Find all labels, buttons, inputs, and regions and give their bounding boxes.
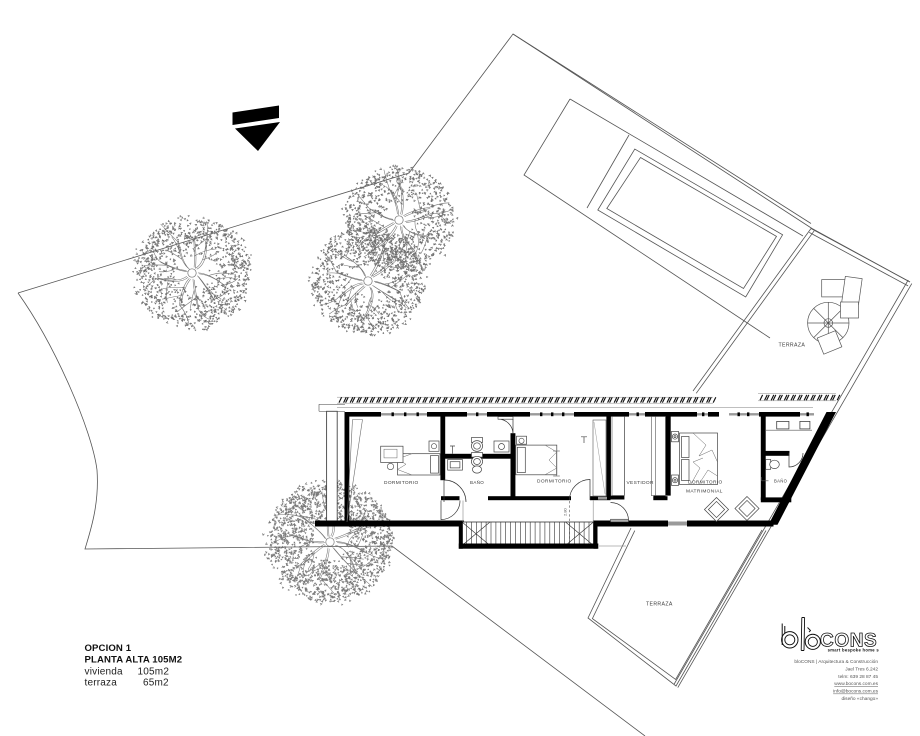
svg-text:DORMITORIO: DORMITORIO [537,479,572,485]
svg-text:smart bespoke home s: smart bespoke home s [828,648,880,653]
svg-text:DORMITORIO: DORMITORIO [384,480,419,486]
svg-text:bloCONS | Arquitectura & Const: bloCONS | Arquitectura & Construcción [794,659,878,665]
svg-text:MATRIMONIAL: MATRIMONIAL [686,489,723,495]
svg-text:info@bocons.com.es: info@bocons.com.es [833,689,878,695]
svg-text:terraza: terraza [85,677,118,688]
svg-text:105m2: 105m2 [138,666,170,677]
svg-text:VESTIDOR: VESTIDOR [627,480,655,486]
svg-text:TERRAZA: TERRAZA [779,343,806,349]
svg-text:OPCION 1: OPCION 1 [85,643,132,654]
svg-text:telm: 639 28 87 45: telm: 639 28 87 45 [838,674,878,680]
svg-text:BAÑO: BAÑO [774,479,788,484]
svg-text:BAÑO: BAÑO [470,479,484,485]
svg-text:2.80: 2.80 [563,507,568,516]
svg-text:diseño «chango»: diseño «chango» [841,696,878,702]
svg-text:PLANTA ALTA 105M2: PLANTA ALTA 105M2 [85,655,183,666]
svg-text:TERRAZA: TERRAZA [646,602,673,608]
svg-text:vivienda: vivienda [85,666,124,677]
svg-text:www.bocons.com.es: www.bocons.com.es [834,681,878,687]
svg-text:DORMITORIO: DORMITORIO [688,480,723,486]
svg-text:65m2: 65m2 [143,677,169,688]
svg-text:Jael Tres 6.242: Jael Tres 6.242 [845,666,878,672]
